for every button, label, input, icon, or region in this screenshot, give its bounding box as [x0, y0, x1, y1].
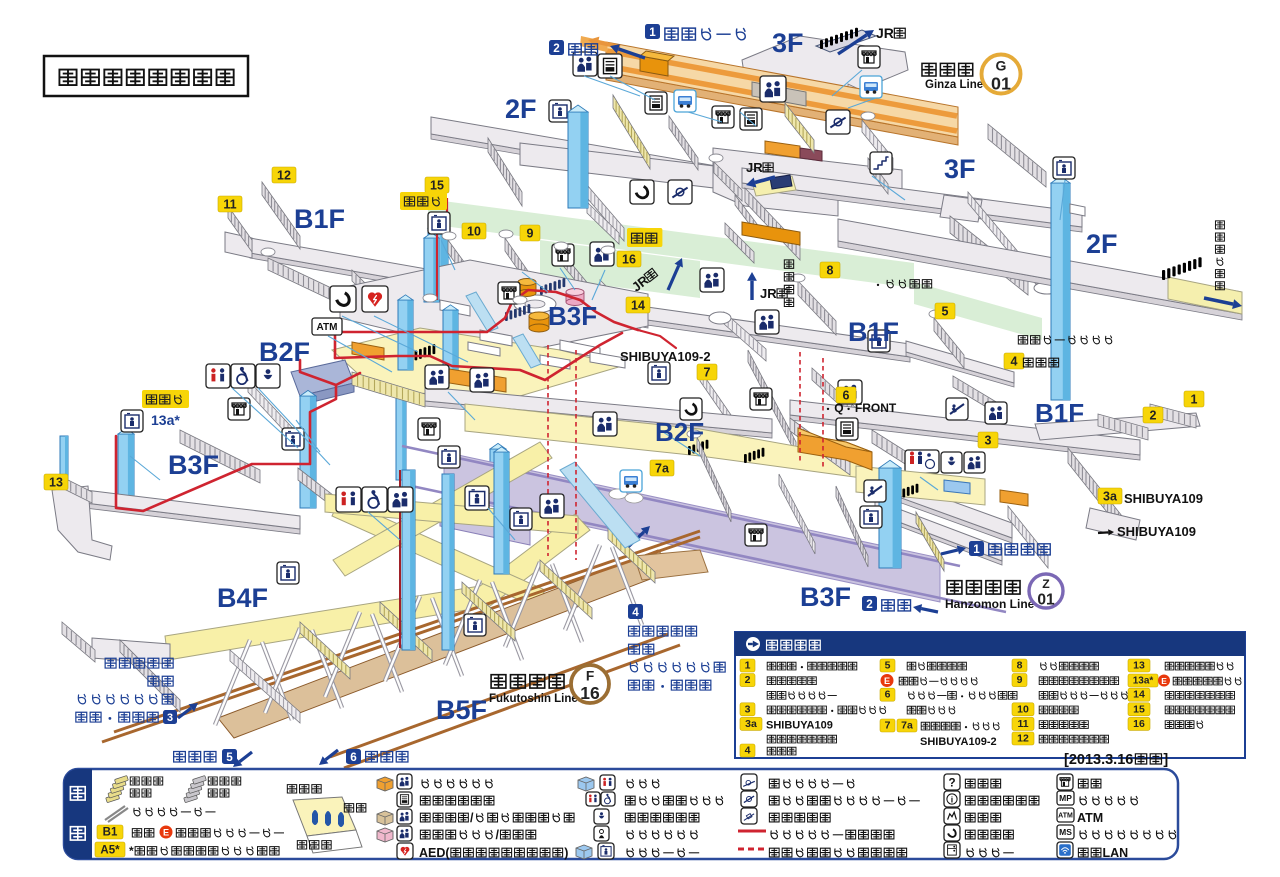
svg-text:A5*: A5*: [100, 845, 120, 857]
svg-text:5: 5: [885, 660, 891, 672]
svg-text:10: 10: [1017, 703, 1029, 715]
svg-text:FRONT: FRONT: [855, 401, 897, 415]
svg-text:2: 2: [745, 674, 751, 686]
svg-text:3F: 3F: [944, 154, 976, 184]
svg-text:B3F: B3F: [168, 450, 219, 480]
svg-text:ATM: ATM: [1058, 813, 1073, 820]
svg-text:7a: 7a: [655, 462, 670, 476]
svg-text:ATM: ATM: [1077, 811, 1103, 825]
svg-text:Ginza Line: Ginza Line: [925, 79, 983, 91]
svg-text:?: ?: [948, 776, 955, 789]
svg-text:16: 16: [622, 253, 636, 267]
svg-text:13a*: 13a*: [1133, 676, 1154, 687]
svg-text:SHIBUYA109: SHIBUYA109: [766, 719, 833, 731]
svg-text:MS: MS: [1059, 827, 1072, 837]
svg-text:7: 7: [885, 720, 891, 732]
svg-text:3: 3: [167, 712, 173, 724]
svg-text:B2F: B2F: [259, 337, 310, 367]
svg-text:16: 16: [580, 683, 600, 703]
svg-text:1: 1: [1191, 393, 1198, 407]
svg-text:E: E: [1161, 676, 1167, 686]
svg-text:8: 8: [1017, 660, 1023, 672]
svg-text:B1F: B1F: [294, 204, 345, 234]
svg-text:G: G: [996, 58, 1007, 74]
svg-text:14: 14: [1133, 689, 1145, 701]
svg-text:]: ]: [1163, 752, 1168, 768]
svg-text:F: F: [586, 669, 594, 684]
svg-text:2: 2: [866, 598, 873, 611]
svg-text:Z: Z: [1042, 577, 1050, 591]
svg-text:4: 4: [1011, 355, 1018, 369]
svg-text:12: 12: [277, 169, 291, 183]
svg-text:Fukutoshin Line: Fukutoshin Line: [489, 693, 578, 705]
svg-text:5: 5: [942, 305, 949, 319]
svg-text:SHIBUYA109: SHIBUYA109: [1117, 524, 1196, 539]
svg-text:SHIBUYA109: SHIBUYA109: [1124, 491, 1203, 506]
svg-text:): ): [564, 846, 568, 860]
svg-text:15: 15: [430, 179, 444, 193]
svg-text:12: 12: [1017, 733, 1029, 745]
svg-text:3: 3: [985, 434, 992, 448]
svg-text:B2F: B2F: [655, 417, 704, 447]
svg-text:Q: Q: [834, 401, 843, 415]
svg-text:7a: 7a: [901, 720, 913, 732]
svg-text:11: 11: [1017, 718, 1028, 730]
svg-text:B3F: B3F: [800, 582, 851, 612]
svg-text:/: /: [470, 811, 474, 825]
svg-text:LAN: LAN: [1103, 846, 1129, 860]
svg-text:2F: 2F: [505, 94, 537, 124]
svg-text:3F: 3F: [772, 28, 804, 58]
svg-text:9: 9: [1017, 674, 1023, 686]
svg-text:1: 1: [973, 543, 980, 556]
svg-text:9: 9: [527, 227, 534, 241]
svg-text:6: 6: [843, 389, 850, 403]
svg-text:SHIBUYA109-2: SHIBUYA109-2: [920, 736, 997, 748]
svg-text:13a*: 13a*: [151, 412, 180, 428]
svg-text:JR: JR: [760, 286, 777, 301]
svg-text:13: 13: [1133, 660, 1145, 672]
svg-text:11: 11: [223, 198, 236, 212]
svg-text:01: 01: [991, 74, 1011, 94]
svg-text:JR: JR: [746, 160, 763, 175]
svg-text:B1F: B1F: [848, 317, 899, 347]
svg-text:6: 6: [350, 751, 357, 764]
svg-text:3a: 3a: [1103, 490, 1118, 504]
svg-text:*: *: [129, 844, 134, 858]
svg-text:ATM: ATM: [317, 322, 338, 333]
svg-text:B3F: B3F: [548, 301, 597, 331]
svg-text:2: 2: [1150, 409, 1157, 423]
svg-text:Hanzomon Line: Hanzomon Line: [945, 597, 1035, 611]
svg-text:3a: 3a: [745, 718, 757, 730]
svg-text:AED(: AED(: [419, 846, 450, 860]
svg-text:MP: MP: [1059, 793, 1072, 803]
svg-text:14: 14: [631, 299, 645, 313]
svg-text:10: 10: [467, 225, 481, 239]
svg-text:2: 2: [553, 42, 560, 55]
svg-text:/: /: [496, 828, 500, 842]
svg-text:2F: 2F: [1086, 229, 1118, 259]
svg-text:01: 01: [1037, 592, 1055, 609]
svg-text:7: 7: [704, 366, 711, 380]
svg-text:B1F: B1F: [1035, 398, 1084, 428]
svg-text:SHIBUYA109-2: SHIBUYA109-2: [620, 349, 711, 364]
svg-text:16: 16: [1133, 718, 1145, 730]
svg-text:3: 3: [745, 703, 751, 715]
svg-text:5: 5: [226, 751, 233, 764]
svg-text:6: 6: [885, 689, 891, 701]
svg-text:8: 8: [827, 264, 834, 278]
svg-text:4: 4: [632, 606, 639, 619]
svg-text:13: 13: [49, 476, 63, 490]
svg-text:1: 1: [745, 660, 751, 672]
svg-text:1: 1: [649, 26, 656, 39]
svg-text:15: 15: [1133, 703, 1145, 715]
svg-text:B5F: B5F: [436, 695, 487, 725]
svg-text:E: E: [163, 828, 169, 838]
svg-text:4: 4: [745, 745, 751, 757]
svg-text:[2013.3.16: [2013.3.16: [1064, 752, 1133, 768]
svg-text:E: E: [884, 676, 890, 686]
svg-text:i: i: [951, 794, 953, 804]
svg-text:B4F: B4F: [217, 583, 268, 613]
svg-text:B1: B1: [103, 827, 118, 839]
svg-text:JR: JR: [876, 25, 894, 41]
